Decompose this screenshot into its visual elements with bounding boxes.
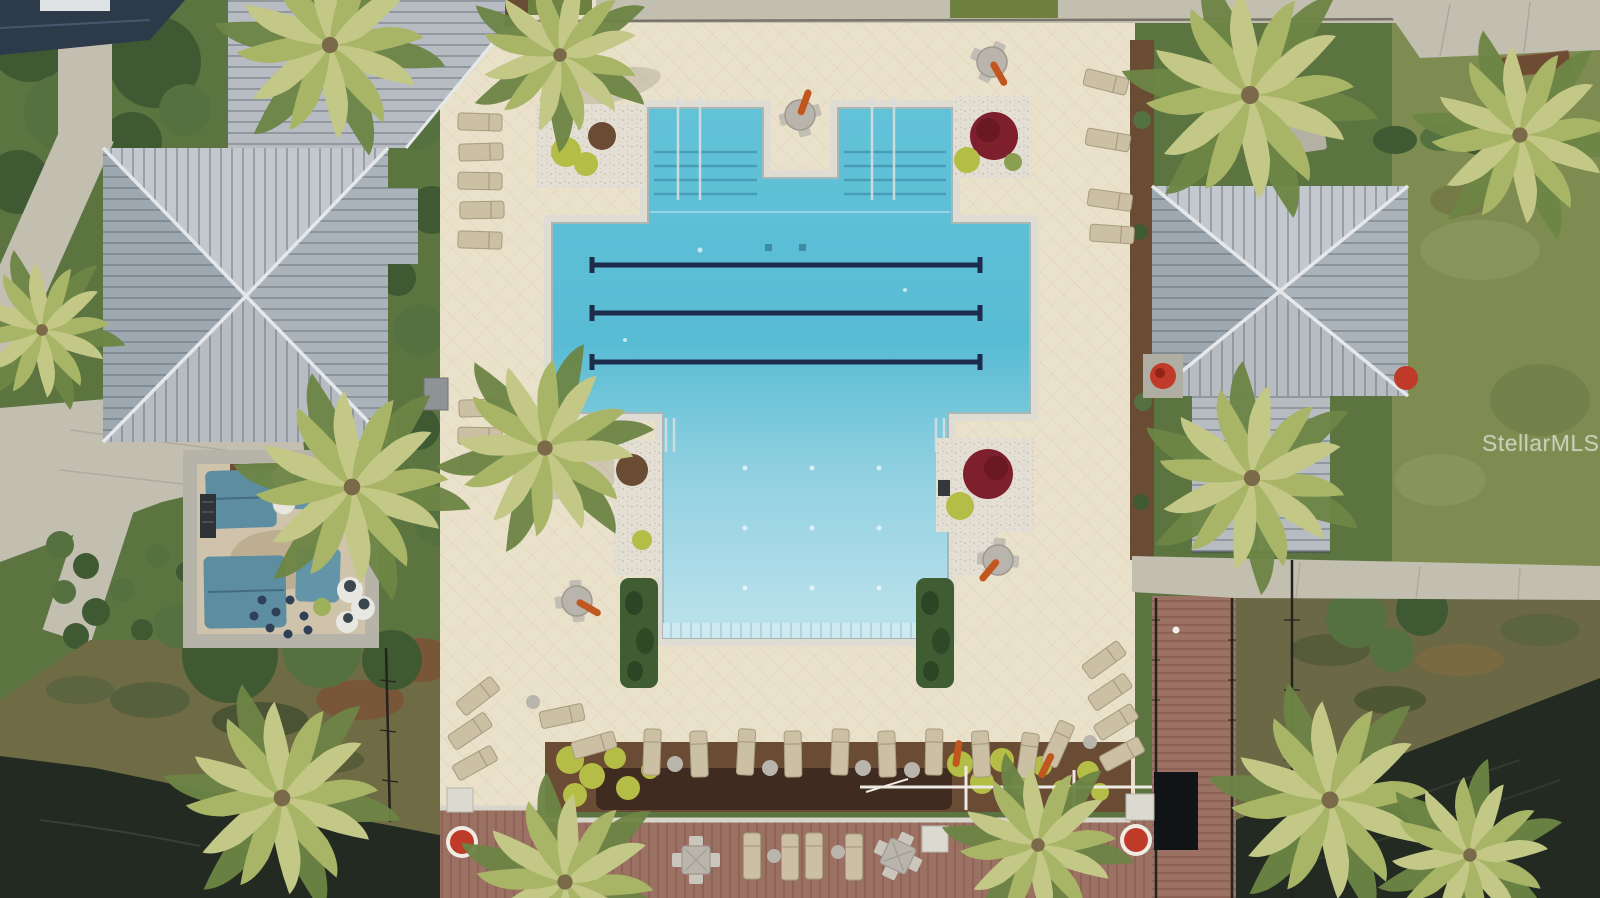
lounge-chair: [782, 834, 799, 880]
column-hedge-left: [620, 578, 658, 688]
planter-box-left: [447, 788, 473, 812]
lounge-chair: [744, 833, 761, 879]
lounge-chair: [846, 834, 863, 880]
red-pot-building-right: [1394, 366, 1418, 390]
gravel-strip-mid-left: [614, 440, 662, 576]
aerial-photo-scene: StellarMLS: [0, 0, 1600, 898]
sun-shelf-tile-edge: [663, 623, 948, 638]
red-pot-right: [1124, 828, 1148, 852]
dark-planter-bin: [1154, 772, 1198, 850]
side-table: [831, 845, 845, 859]
lounge-chair: [806, 833, 823, 879]
aerial-photo-canvas: [0, 0, 1600, 898]
gravel-island-top-right: [954, 96, 1032, 178]
planter-box-right: [1126, 794, 1154, 820]
column-hedge-right: [916, 578, 954, 688]
play-bench: [200, 494, 216, 538]
right-planting-strip: [1130, 40, 1154, 560]
utility-box: [424, 378, 448, 410]
side-table: [767, 849, 781, 863]
white-bird: [1173, 627, 1180, 634]
